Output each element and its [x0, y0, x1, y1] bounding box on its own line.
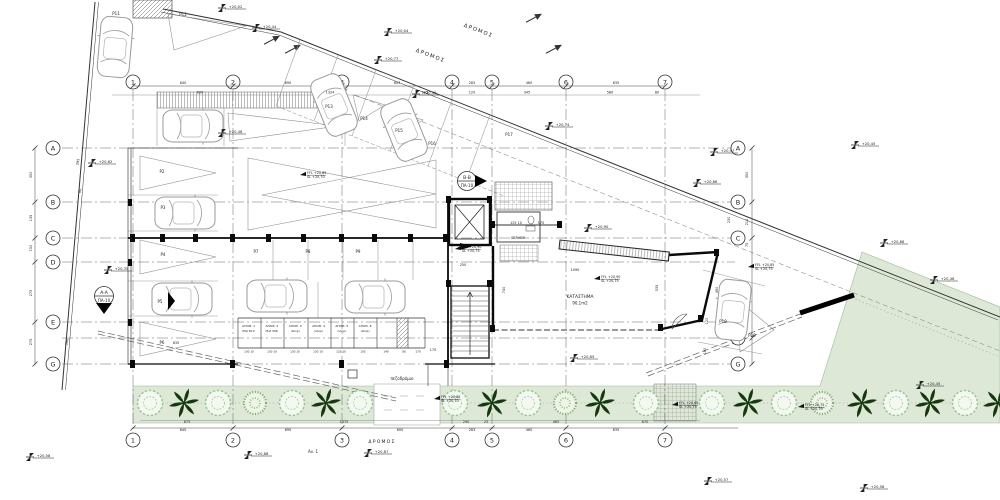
road-label: ΔΡΟΜΟΣ — [368, 439, 395, 445]
dimension-label: 350 — [29, 172, 33, 178]
spot-level-value: +20,04 — [395, 29, 409, 33]
grid-bubble-col-label: 3 — [340, 436, 344, 444]
storage-unit-tag: (shop) — [291, 329, 300, 333]
spot-level-value: +20,58 — [37, 454, 51, 458]
dimension-label: 1090 — [571, 268, 580, 272]
parking-space-label: P15 — [395, 128, 403, 133]
section-b-name: B-B — [463, 175, 471, 181]
grid-bubble-row-label: A — [736, 144, 741, 152]
dimension-label: 125 10 — [510, 221, 522, 225]
dimension-label: 690 — [197, 91, 203, 95]
spot-level-icon — [693, 179, 701, 187]
dimension-label: 180 — [703, 348, 707, 354]
dimension-label: 690 — [285, 428, 291, 432]
storage-unit-tag: (flat 304) — [265, 329, 278, 333]
parking-space-label: P13 — [325, 104, 333, 109]
sl-value: SL +20,70 — [441, 399, 459, 403]
spot-level-value: +20,74 — [556, 123, 570, 127]
road-label: ΔΡΟΜΟΣ — [463, 23, 494, 40]
grid-bubble-row-label: C — [736, 234, 741, 242]
tree-icon — [348, 391, 373, 416]
spot-level-icon — [412, 90, 420, 98]
parking-space-label: P3 — [161, 205, 166, 210]
section-a-name: A-A — [100, 290, 109, 296]
spot-level-value: +20,44 — [263, 25, 277, 29]
grid-bubble-row-label: C — [51, 234, 56, 242]
grid-bubble-col-label: 1 — [131, 436, 135, 444]
road-label: ΔΡΟΜΟΣ — [415, 48, 446, 65]
spot-level-icon — [384, 28, 392, 36]
storage-unit-tag: (shop) — [361, 329, 370, 333]
dimension-label: 350 — [745, 172, 749, 178]
site-plan-drawing: 11223344556677AABBCCDEFGG — [0, 0, 1000, 500]
dimension-label: 120 — [469, 91, 475, 95]
grid-bubble-col-label: 5 — [490, 436, 494, 444]
spot-level-icon — [880, 239, 888, 247]
spot-level-value: +20,57 — [715, 478, 729, 482]
storage-unit-label: ΑΠΟΘ. 2 — [265, 324, 278, 328]
spot-level-value: +20,77 — [385, 57, 399, 61]
shop-area-label: 90,1m2 — [572, 301, 588, 306]
storage-unit-tag: (shop) — [314, 329, 323, 333]
shop-label: ΚΑΤΑΣΤΗΜΑ — [566, 294, 593, 300]
spot-level-value: +20,35 — [115, 267, 129, 271]
spot-level-icon — [364, 449, 372, 457]
ramp — [495, 182, 552, 210]
dimension-label: 295 — [75, 158, 80, 165]
parking-space-label: P4 — [161, 252, 166, 257]
dimension-label: 80 — [655, 91, 659, 95]
dimension-label: 25 — [484, 420, 488, 424]
storage-cell-dim: 130 10 — [267, 350, 277, 354]
storage-cell-dim: 130 10 — [244, 350, 254, 354]
tree-icon — [634, 391, 659, 416]
tree-icon — [516, 391, 541, 416]
finish-level-icon — [455, 246, 461, 250]
parking-space-label: P12 — [179, 12, 187, 17]
storage-cell-dim: 140 — [383, 350, 389, 354]
spot-level-value: +20,90 — [595, 225, 609, 229]
sl-value: SL +20,75 — [755, 267, 773, 271]
storage-cell-dim: 105 — [360, 350, 366, 354]
spot-level-icon — [545, 122, 553, 130]
spot-level-icon — [88, 159, 96, 167]
grid-bubble-row-label: D — [50, 258, 55, 266]
storage-cell-dim: 130 10 — [290, 350, 300, 354]
storage-cell-dim: 130 10 — [313, 350, 323, 354]
dimension-label: 275 — [29, 290, 33, 296]
spot-level-icon — [584, 224, 592, 232]
dimension-label: 135 — [29, 215, 33, 221]
spot-level-icon — [374, 56, 382, 64]
dimension-label: 465 — [553, 420, 559, 424]
dimension-label: 250 — [460, 263, 466, 267]
parking-space-label: P18 — [719, 319, 727, 324]
dimension-label: 840 — [180, 81, 186, 85]
dimension-label: 460 — [526, 428, 532, 432]
finish-level-icon — [594, 276, 600, 280]
spot-level-icon — [244, 451, 252, 459]
grid-bubble-col-label: 6 — [564, 436, 568, 444]
sl-value: SL +20,70 — [307, 175, 325, 179]
storage-cell-dim: 170 — [415, 350, 421, 354]
tree-icon — [953, 391, 978, 416]
grid-bubble-row-label: E — [51, 318, 55, 326]
parking-space-label: P19 — [748, 333, 756, 338]
spot-level-value: +20,97 — [721, 149, 735, 153]
spot-level-value: +20,62 — [99, 160, 113, 164]
dimension-label: 580 — [607, 91, 613, 95]
dimension-label: 490 — [715, 287, 719, 293]
tree-icon — [280, 391, 305, 416]
entrance-walkway — [374, 384, 440, 425]
dimension-label: 180 — [64, 338, 69, 345]
parking-space-label: P2 — [160, 169, 165, 174]
dimension-label: 600 — [397, 428, 403, 432]
sl-value: SL +20,75 — [462, 249, 480, 253]
dimension-label: 603 — [394, 81, 400, 85]
parking-space-label: P11 — [112, 11, 120, 16]
spot-level-value: +20,48 — [229, 130, 243, 134]
dimension-label: 1375 — [340, 420, 349, 424]
dimension-label: 170 — [538, 221, 544, 225]
dimension-label: 460 — [526, 81, 532, 85]
spot-level-icon — [860, 484, 868, 492]
columns — [128, 196, 719, 368]
dimension-label: 120 — [705, 318, 709, 324]
sidewalk-label: πεζοδρόμιο — [391, 376, 415, 381]
spot-level-icon — [252, 24, 260, 32]
retaining-wall — [559, 240, 669, 261]
spot-level-value: +20,86 — [704, 180, 718, 184]
dimension-label: 290 — [463, 420, 469, 424]
dimension-label: 275 — [29, 339, 33, 345]
section-a-sheet: ΠΑ-10 — [98, 298, 111, 303]
spot-level-icon — [26, 453, 34, 461]
parking-space-label: P8 — [306, 249, 311, 254]
spot-level-icon — [218, 4, 226, 12]
dimension-label: 635 — [613, 81, 619, 85]
dimension-label: 210 — [745, 219, 749, 225]
grid-bubble-col-label: 7 — [663, 436, 667, 444]
storage-unit-tag: (flat 301) — [242, 329, 255, 333]
server-room-label: SERVER — [511, 236, 526, 240]
floor-plan-canvas: 11223344556677AABBCCDEFGG — [0, 0, 1000, 500]
storage-unit-label: ΑΠΟΘ. 3 — [289, 324, 302, 328]
building-plan — [128, 148, 719, 386]
dimension-label: 1324 — [326, 91, 335, 95]
section-b-sheet: ΠΑ-10 — [461, 183, 474, 188]
tree-icon — [772, 391, 797, 416]
tree-icon — [700, 391, 725, 416]
dimension-label: 670 — [642, 420, 648, 424]
spot-level-icon — [570, 354, 578, 362]
hatched-structure — [133, 0, 172, 18]
parking-space-label: P9 — [356, 249, 361, 254]
spot-level-value: +20,45 — [862, 142, 876, 146]
dimension-label: 535 — [655, 285, 659, 291]
tree-icon — [206, 391, 231, 416]
spot-level-icon — [851, 141, 859, 149]
sl-value: SL +20,70 — [805, 407, 823, 411]
bush-icon — [554, 392, 576, 414]
grid-bubble-row-label: G — [50, 360, 55, 368]
storage-unit-label: ΑΠΟΘ. 4 — [312, 324, 325, 328]
dimension-label: 640 — [180, 428, 186, 432]
spot-level-value: +20,88 — [255, 452, 269, 456]
spot-level-value: +20,02 — [229, 5, 243, 9]
grid-bubble-row-label: B — [51, 198, 55, 206]
bush-icon — [244, 392, 266, 414]
parking-space-label: P6 — [160, 340, 165, 345]
dimension-label: 75 — [745, 243, 749, 247]
dimension-label: 690 — [285, 81, 291, 85]
grid-bubble-row-label: G — [735, 360, 740, 368]
parking-space-label: P14 — [360, 116, 368, 121]
dimension-label: 345 — [524, 91, 530, 95]
spot-level-icon — [704, 477, 712, 485]
spot-level-value: +20,87 — [375, 450, 389, 454]
storage-unit-label: ΑΠΟΘ. 1 — [242, 324, 255, 328]
sl-value: SL +20,75 — [679, 405, 697, 409]
note-label: Αν. 1 — [308, 449, 319, 454]
dimension-label: 170 — [430, 348, 436, 352]
tree-icon — [138, 391, 163, 416]
dimension-label: 740 — [502, 287, 506, 293]
spot-level-value: +20,45 — [927, 382, 941, 386]
parked-cars — [94, 16, 755, 342]
dimension-label: 635 — [613, 428, 619, 432]
grid-bubble-col-label: 2 — [231, 436, 235, 444]
storage-unit-label: ΑΠΟΘ. 6 — [359, 324, 372, 328]
spot-level-icon — [710, 148, 718, 156]
spot-level-value: +20,46 — [941, 277, 955, 281]
finish-level-icon — [748, 264, 754, 268]
tree-icon — [884, 391, 909, 416]
parking-space-label: P17 — [505, 132, 513, 137]
storage-unit-tag: (shop) — [337, 329, 346, 333]
dimension-label: 150 — [29, 245, 33, 251]
spot-level-value: +20,40 — [423, 91, 437, 95]
spot-level-icon — [104, 266, 112, 274]
grid-bubble-row-label: B — [736, 198, 740, 206]
storage-cell-dim: 80 — [402, 350, 406, 354]
finish-level-icon — [300, 172, 306, 176]
dimension-label: 60 — [78, 188, 83, 193]
sl-value: SL +20,75 — [601, 279, 619, 283]
dimension-label: 283 — [469, 428, 475, 432]
section-marker-a: A-A ΠΑ-10 — [95, 287, 114, 315]
parking-space-label: P16 — [428, 141, 436, 146]
dimension-label: 283 — [469, 81, 475, 85]
grid-bubble-col-label: 4 — [450, 436, 454, 444]
storage-cell-dim: 125 10 — [336, 350, 346, 354]
dimension-label: 835 — [173, 341, 179, 345]
parking-space-label: P5 — [158, 299, 163, 304]
storage-unit-label: ΑΠΟΘ. 5 — [335, 324, 348, 328]
spot-level-value: +20,65 — [581, 355, 595, 359]
spot-level-value: +20,58 — [871, 485, 885, 489]
dimension-label: 875 — [184, 420, 190, 424]
dimension-label: 230 — [727, 217, 731, 223]
spot-level-value: +20,88 — [891, 240, 905, 244]
grid-bubble-row-label: A — [51, 144, 56, 152]
parking-space-label: P7 — [254, 249, 259, 254]
